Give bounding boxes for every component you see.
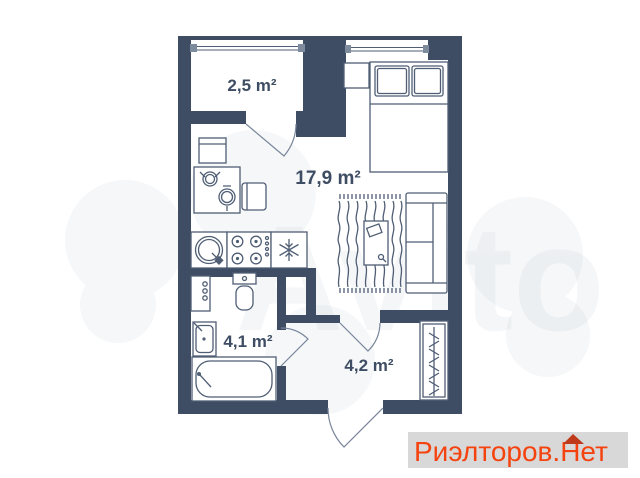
window-cap xyxy=(298,44,305,52)
wall-bottom-right xyxy=(383,400,462,414)
radiator-body xyxy=(191,276,210,311)
room-label-living-room: 17,9 m² xyxy=(295,168,360,189)
wall-bottom-left xyxy=(178,400,328,414)
wall-hallway-top-left xyxy=(277,315,340,323)
burner-dot xyxy=(254,240,257,243)
balcony-window xyxy=(190,44,305,52)
wall-left xyxy=(178,36,191,414)
towel-radiator xyxy=(191,276,210,311)
kitchen-cabinet xyxy=(199,138,226,163)
wall-window-top xyxy=(346,36,428,40)
window-cap xyxy=(190,44,197,52)
toilet-bowl xyxy=(236,286,253,310)
wall-balcony-bottom-stub xyxy=(296,111,305,137)
bedroom-window xyxy=(345,45,429,53)
wall-shaft-right xyxy=(306,268,316,323)
sofa-body xyxy=(406,193,447,293)
coffee-table xyxy=(364,221,388,265)
window-cap xyxy=(423,45,429,53)
burner-dot xyxy=(254,257,257,260)
nightstand xyxy=(344,63,369,88)
wall-pier xyxy=(303,36,346,137)
room-label-balcony: 2,5 m² xyxy=(227,76,276,95)
floor-plan-image: Avito xyxy=(0,0,640,478)
toilet-tank xyxy=(233,273,256,284)
burner-dot xyxy=(236,257,239,260)
wall-bathroom-right-lower xyxy=(277,366,286,400)
cabinet-body xyxy=(199,138,226,163)
burner-dot xyxy=(236,240,239,243)
watermark-circle xyxy=(80,267,156,343)
window-glass xyxy=(197,47,298,51)
wardrobe xyxy=(420,321,448,400)
sofa xyxy=(406,193,447,293)
window-cap xyxy=(345,45,351,53)
bathtub xyxy=(192,357,276,401)
kitchen-counter xyxy=(191,232,307,268)
chair-seat xyxy=(242,183,266,210)
wall-right xyxy=(448,36,462,414)
bathtub-body xyxy=(192,357,276,401)
dining-table xyxy=(194,167,240,213)
dining-chair xyxy=(242,183,266,210)
window-glass xyxy=(351,48,423,52)
wall-balcony-top xyxy=(178,36,305,40)
table-top xyxy=(194,167,240,213)
sink-drain xyxy=(202,337,205,340)
bathroom-sink xyxy=(193,322,216,356)
wall-shaft-top xyxy=(286,268,306,277)
toilet xyxy=(233,273,256,310)
room-label-hallway: 4,2 m² xyxy=(344,356,393,375)
wall-balcony-bottom xyxy=(191,111,246,124)
sink-module xyxy=(191,232,227,268)
bed xyxy=(370,62,448,172)
site-logo: Риэлторов.Нет xyxy=(408,432,628,468)
entrance-door-arc xyxy=(328,408,383,447)
room-label-bathroom: 4,1 m² xyxy=(223,332,272,351)
